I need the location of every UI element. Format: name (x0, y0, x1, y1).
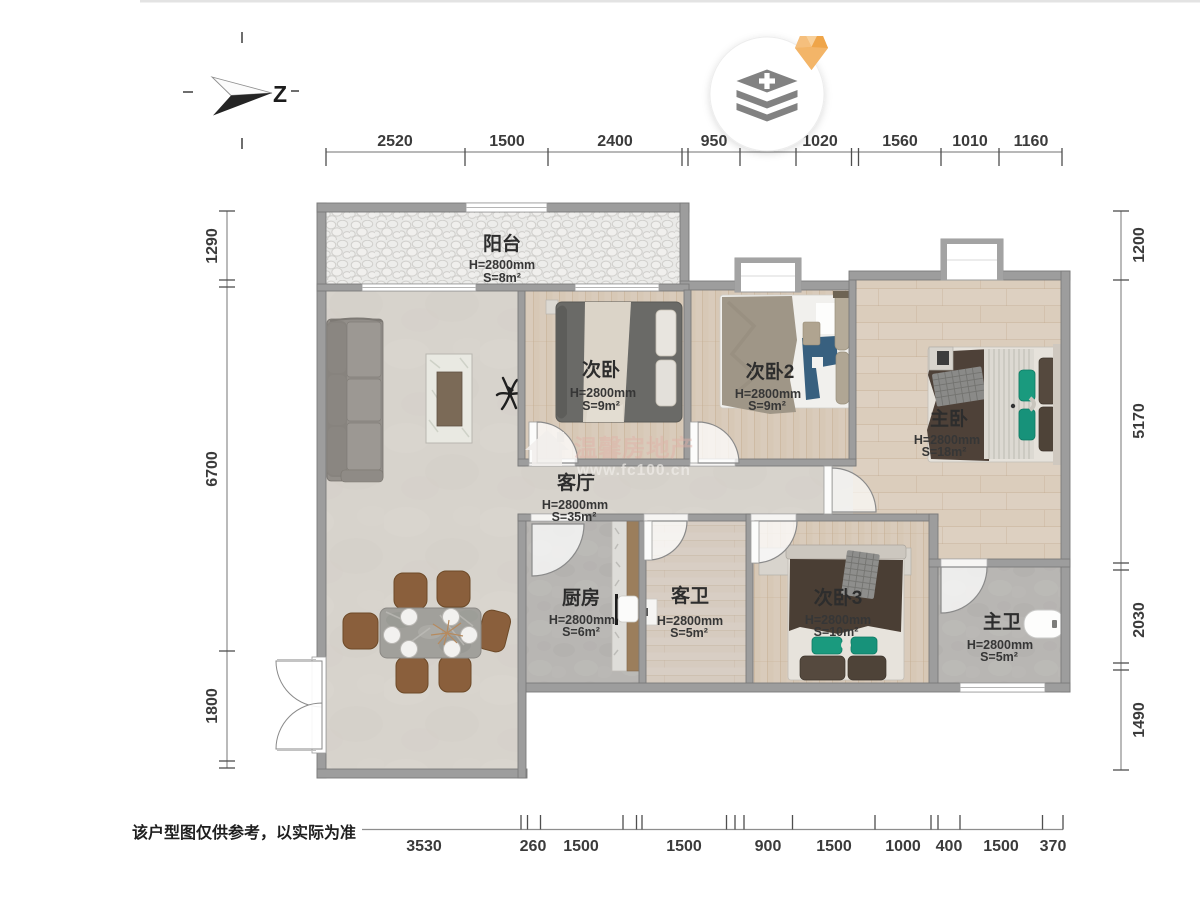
svg-text:H=2800mm: H=2800mm (469, 258, 535, 272)
svg-text:S=10m²: S=10m² (814, 625, 859, 639)
svg-text:1500: 1500 (563, 838, 599, 855)
svg-text:www.fc100.cn: www.fc100.cn (576, 462, 691, 479)
svg-text:1160: 1160 (1014, 133, 1049, 150)
svg-text:S=6m²: S=6m² (562, 625, 600, 639)
svg-text:S=9m²: S=9m² (582, 399, 620, 413)
svg-text:370: 370 (1040, 838, 1067, 855)
svg-text:次卧3: 次卧3 (814, 586, 863, 609)
svg-text:S=9m²: S=9m² (748, 399, 786, 413)
svg-text:1000: 1000 (885, 838, 921, 855)
svg-text:主卫: 主卫 (983, 611, 1021, 633)
svg-text:主卧: 主卧 (930, 408, 968, 430)
svg-text:400: 400 (936, 838, 963, 855)
svg-text:1500: 1500 (489, 133, 525, 150)
svg-text:S=35m²: S=35m² (552, 510, 597, 524)
svg-text:1500: 1500 (666, 838, 702, 855)
svg-text:阳台: 阳台 (483, 232, 521, 255)
svg-text:5170: 5170 (1131, 403, 1148, 439)
svg-text:次卧: 次卧 (582, 358, 620, 381)
svg-text:1200: 1200 (1131, 227, 1148, 263)
svg-text:1500: 1500 (983, 838, 1019, 855)
svg-text:S=8m²: S=8m² (483, 271, 521, 285)
svg-text:1020: 1020 (802, 133, 838, 150)
svg-text:1500: 1500 (816, 838, 852, 855)
svg-text:客卫: 客卫 (671, 584, 709, 607)
svg-text:6700: 6700 (204, 451, 221, 487)
svg-text:2030: 2030 (1131, 602, 1148, 638)
svg-text:厨房: 厨房 (562, 586, 600, 609)
svg-text:S=5m²: S=5m² (670, 626, 708, 640)
svg-text:S=18m²: S=18m² (922, 445, 967, 459)
svg-text:1010: 1010 (952, 133, 988, 150)
svg-text:温馨房地产: 温馨房地产 (574, 434, 694, 461)
svg-text:2520: 2520 (377, 133, 413, 150)
svg-text:H=2800mm: H=2800mm (570, 386, 636, 400)
svg-text:1800: 1800 (204, 688, 221, 724)
svg-text:S=5m²: S=5m² (980, 650, 1018, 664)
svg-text:260: 260 (520, 838, 547, 855)
svg-text:1560: 1560 (882, 133, 918, 150)
svg-text:950: 950 (701, 133, 728, 150)
svg-text:该户型图仅供参考，以实际为准: 该户型图仅供参考，以实际为准 (132, 823, 356, 842)
svg-text:次卧2: 次卧2 (746, 360, 795, 383)
svg-text:Z: Z (273, 81, 287, 107)
svg-text:3530: 3530 (406, 838, 442, 855)
svg-text:900: 900 (755, 838, 782, 855)
svg-text:2400: 2400 (597, 133, 633, 150)
svg-text:1290: 1290 (204, 228, 221, 264)
svg-text:1490: 1490 (1131, 702, 1148, 738)
